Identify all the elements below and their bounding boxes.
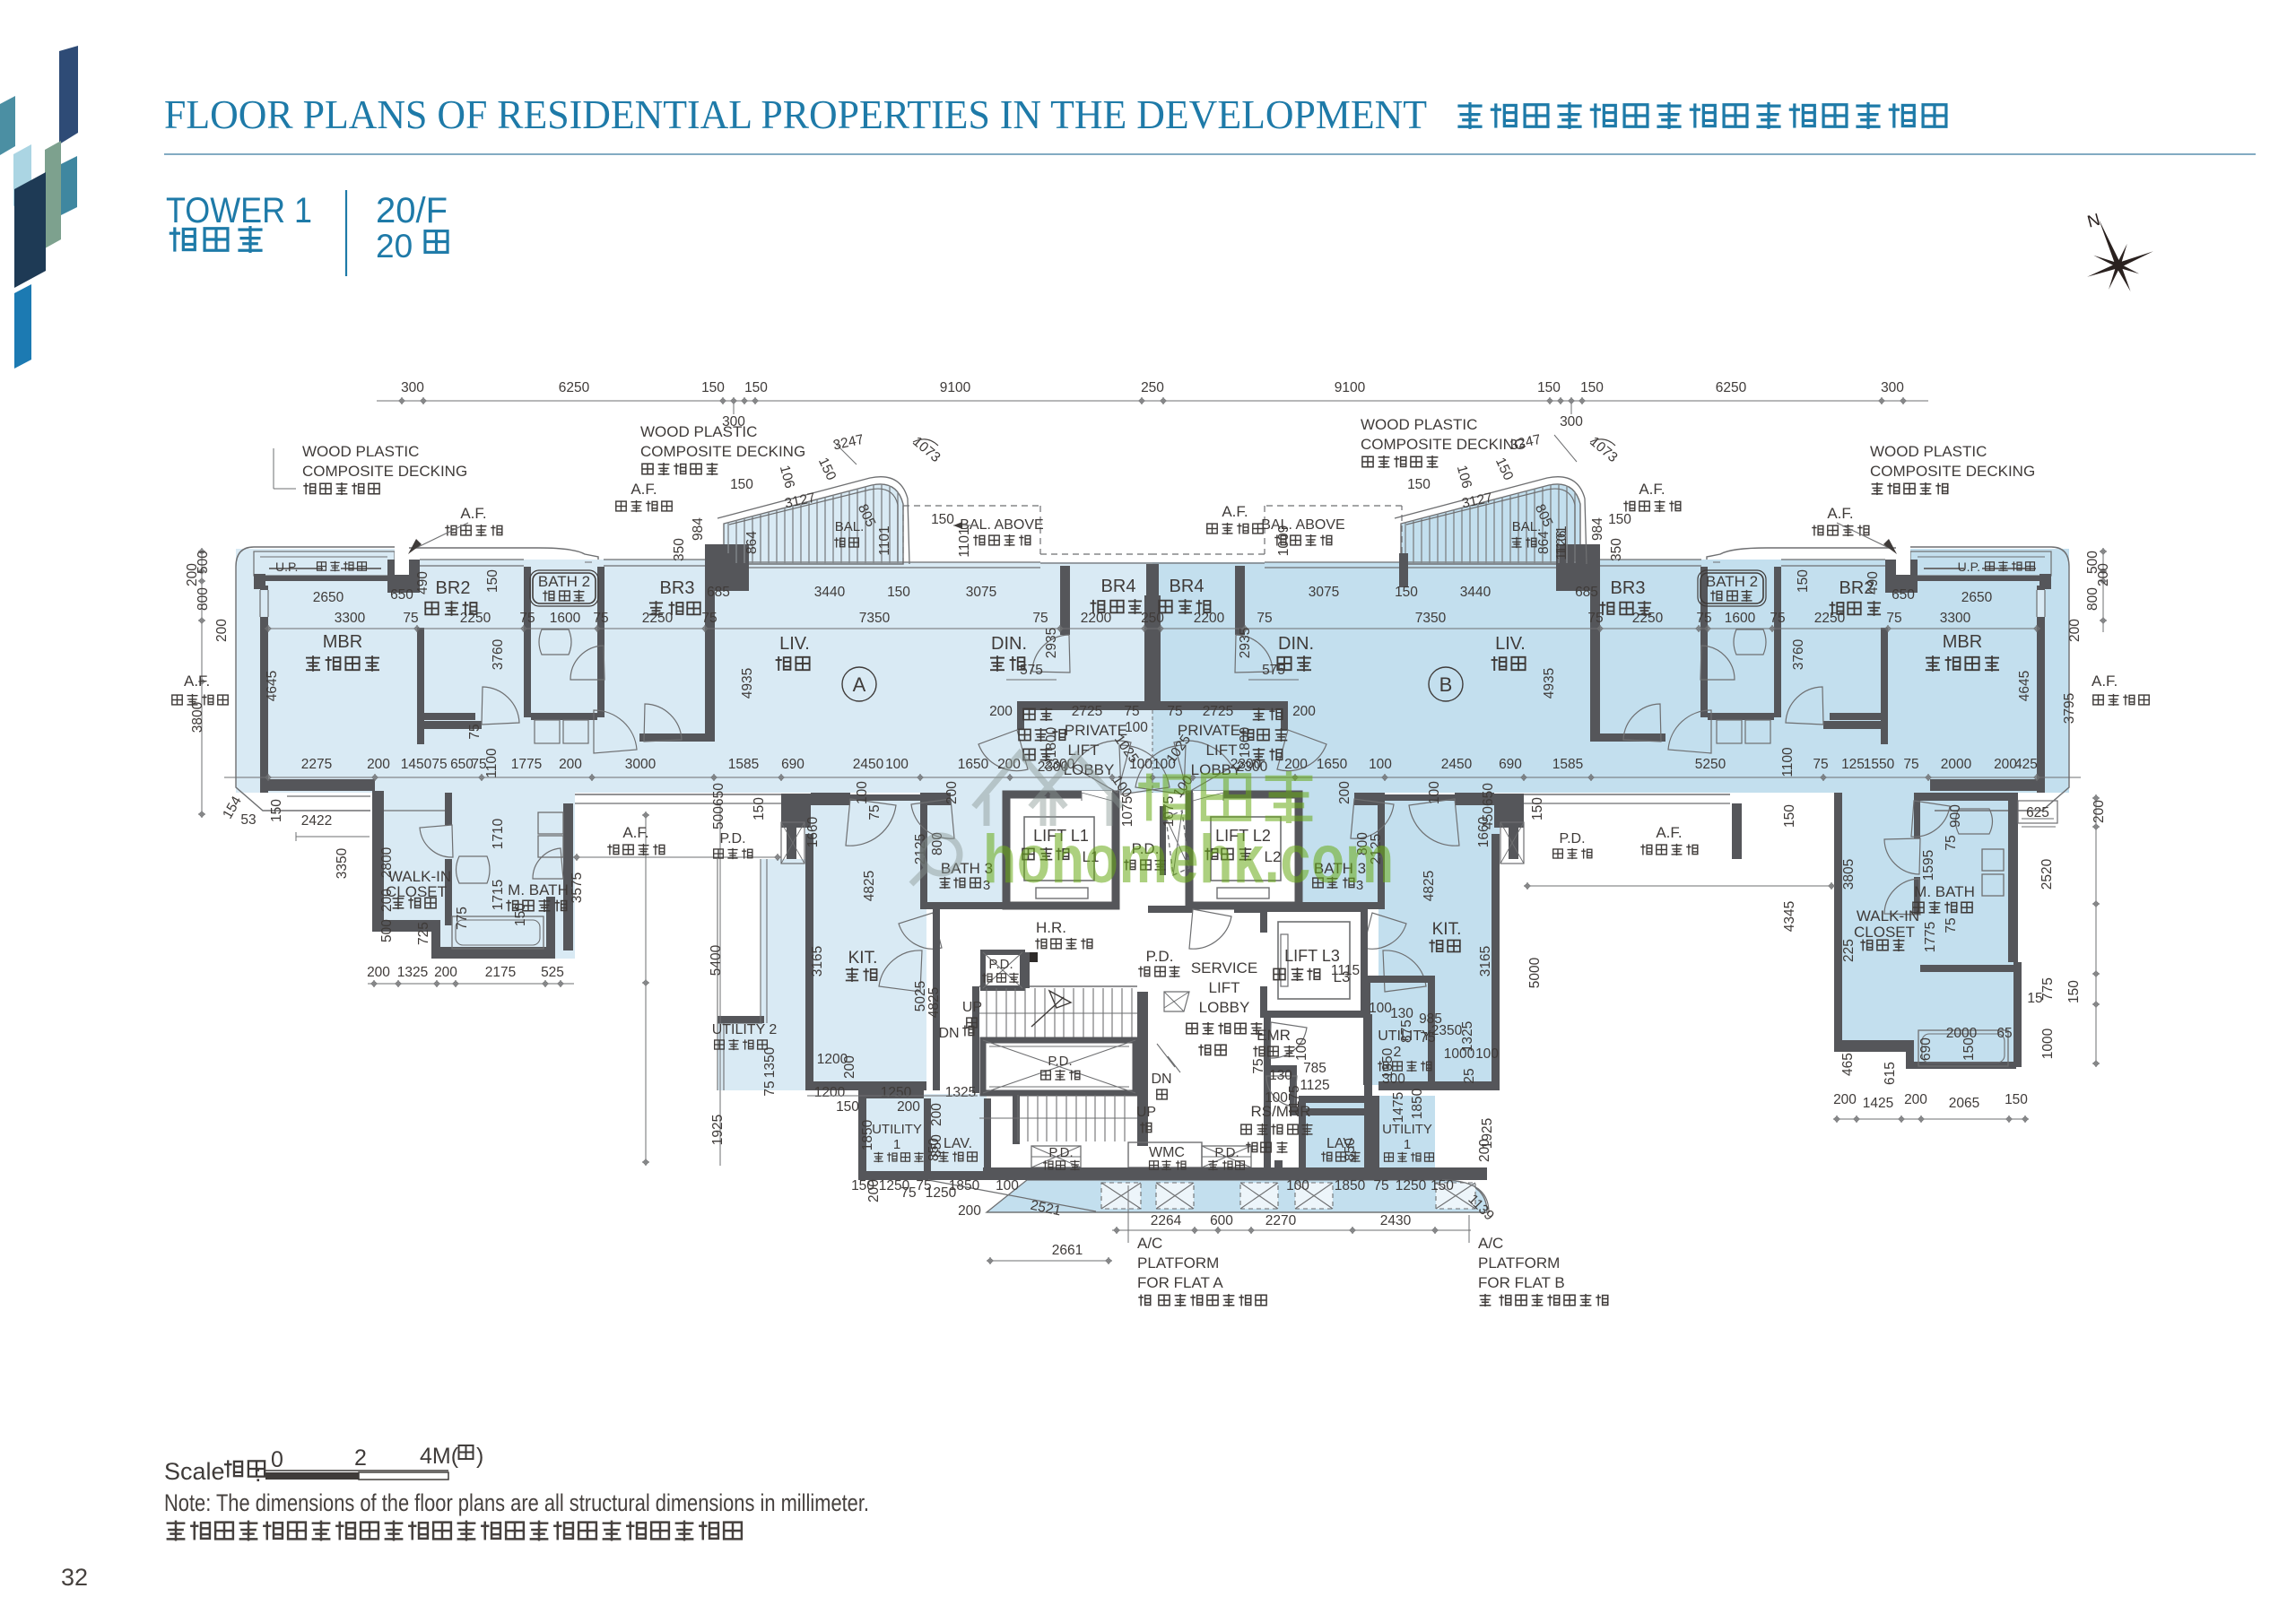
- svg-text:3165: 3165: [810, 946, 825, 976]
- svg-text:1000: 1000: [2040, 1028, 2056, 1059]
- svg-text:300: 300: [1560, 414, 1583, 430]
- svg-text::: :: [255, 1460, 262, 1487]
- svg-text:300: 300: [1881, 380, 1904, 395]
- svg-text:600: 600: [1210, 1213, 1233, 1228]
- svg-text:200: 200: [559, 757, 582, 772]
- svg-text:1126: 1126: [1554, 530, 1570, 560]
- svg-text:75: 75: [701, 611, 717, 626]
- svg-text:FLOOR PLANS OF RESIDENTIAL PRO: FLOOR PLANS OF RESIDENTIAL PROPERTIES IN…: [164, 91, 1427, 137]
- svg-text:P.D.: P.D.: [988, 957, 1013, 972]
- svg-text:U.P.: U.P.: [275, 560, 298, 574]
- svg-text:2450: 2450: [1441, 757, 1473, 772]
- svg-text:75: 75: [1251, 1058, 1266, 1073]
- svg-text:425: 425: [2014, 757, 2038, 772]
- svg-text:4825: 4825: [926, 987, 942, 1018]
- svg-text:130: 130: [1390, 1006, 1413, 1021]
- svg-text:1600: 1600: [550, 611, 581, 626]
- svg-text:7350: 7350: [1415, 611, 1447, 626]
- svg-text:M. BATH: M. BATH: [1914, 883, 1975, 900]
- svg-text:1250: 1250: [1396, 1178, 1427, 1193]
- svg-text:150: 150: [752, 797, 767, 820]
- svg-text:3440: 3440: [814, 585, 846, 600]
- svg-text:100: 100: [1427, 781, 1442, 804]
- svg-text:BR3: BR3: [1611, 578, 1646, 598]
- svg-text:200: 200: [367, 757, 390, 772]
- svg-text:PLATFORM: PLATFORM: [1137, 1254, 1219, 1271]
- svg-text:75: 75: [1944, 917, 1959, 933]
- svg-text:1850: 1850: [1335, 1178, 1366, 1193]
- svg-text:490: 490: [415, 571, 430, 595]
- svg-text:UTILITY: UTILITY: [1382, 1122, 1432, 1137]
- svg-text:BR4: BR4: [1170, 577, 1205, 596]
- svg-text:A.F.: A.F.: [1827, 505, 1853, 522]
- svg-text:75: 75: [467, 724, 483, 739]
- svg-text:1325: 1325: [397, 965, 428, 980]
- svg-text:75: 75: [1813, 757, 1828, 772]
- svg-text:1650: 1650: [958, 757, 989, 772]
- svg-text:MBR: MBR: [323, 632, 362, 652]
- svg-text:1101: 1101: [877, 525, 892, 555]
- svg-text:A.F.: A.F.: [631, 481, 657, 498]
- svg-text:250: 250: [1141, 380, 1164, 395]
- svg-text:150: 150: [2005, 1092, 2028, 1107]
- svg-text:1600: 1600: [1725, 611, 1756, 626]
- svg-text:200: 200: [842, 1055, 857, 1079]
- svg-text:150: 150: [1580, 380, 1604, 395]
- svg-text:2935: 2935: [1044, 628, 1059, 658]
- svg-text:225: 225: [1841, 939, 1857, 962]
- svg-text:200: 200: [2096, 563, 2111, 586]
- svg-text:Note: The dimensions of the fl: Note: The dimensions of the floor plans …: [164, 1489, 869, 1516]
- svg-text:75: 75: [762, 1081, 778, 1096]
- svg-text:PRIVATE: PRIVATE: [1178, 722, 1240, 739]
- svg-text:100: 100: [1475, 1046, 1499, 1062]
- svg-text:650: 650: [1481, 783, 1496, 806]
- svg-text:685: 685: [1575, 585, 1598, 600]
- svg-text:LIV.: LIV.: [1495, 634, 1526, 654]
- svg-text:32: 32: [61, 1564, 88, 1591]
- svg-text:75: 75: [593, 611, 608, 626]
- svg-text:1125: 1125: [1300, 1078, 1329, 1093]
- svg-text:150: 150: [1395, 585, 1418, 600]
- svg-text:2725: 2725: [1203, 704, 1233, 719]
- svg-text:WMC: WMC: [1149, 1145, 1185, 1160]
- svg-text:150: 150: [931, 512, 954, 527]
- svg-text:1585: 1585: [728, 757, 759, 772]
- svg-text:690: 690: [1499, 757, 1522, 772]
- svg-text:1: 1: [1404, 1137, 1411, 1152]
- svg-text:200: 200: [958, 1203, 981, 1219]
- svg-text:DN: DN: [938, 1026, 959, 1041]
- svg-text:2264: 2264: [1151, 1213, 1182, 1228]
- svg-text:DN: DN: [1151, 1072, 1171, 1087]
- svg-text:L3: L3: [1334, 968, 1351, 985]
- svg-text:BR2: BR2: [436, 578, 471, 598]
- svg-text:2270: 2270: [1265, 1213, 1297, 1228]
- svg-text:A.F.: A.F.: [460, 505, 486, 522]
- svg-text:WALK-IN: WALK-IN: [1857, 907, 1919, 924]
- svg-text:A/C: A/C: [1137, 1235, 1162, 1252]
- svg-text:200: 200: [1833, 1092, 1857, 1107]
- svg-text:200: 200: [929, 1103, 944, 1126]
- svg-text:LOBBY: LOBBY: [1199, 999, 1250, 1016]
- svg-text:1350: 1350: [762, 1046, 778, 1078]
- svg-text:625: 625: [2026, 805, 2049, 820]
- svg-text:EMR: EMR: [1257, 1027, 1291, 1044]
- svg-text:75: 75: [431, 757, 447, 772]
- svg-text:3440: 3440: [1460, 585, 1492, 600]
- svg-text:1100: 1100: [484, 748, 500, 778]
- svg-text:200: 200: [1292, 704, 1316, 719]
- svg-text:5250: 5250: [1695, 757, 1726, 772]
- svg-text:350: 350: [1609, 538, 1624, 561]
- svg-text:15: 15: [2027, 991, 2042, 1006]
- svg-text:125: 125: [1841, 757, 1865, 772]
- svg-text:100: 100: [885, 757, 909, 772]
- svg-text:1250: 1250: [926, 1185, 957, 1201]
- svg-text:350: 350: [672, 538, 687, 561]
- svg-text:150: 150: [836, 1099, 859, 1115]
- svg-text:200: 200: [1477, 1139, 1492, 1162]
- svg-text:4645: 4645: [265, 671, 280, 701]
- svg-text:A.F.: A.F.: [2092, 673, 2118, 690]
- svg-text:150: 150: [730, 477, 753, 492]
- svg-text:FOR FLAT A: FOR FLAT A: [1137, 1274, 1223, 1291]
- svg-text:1: 1: [893, 1137, 900, 1152]
- svg-text:150: 150: [851, 1178, 874, 1193]
- svg-text:TOWER 1: TOWER 1: [166, 191, 312, 230]
- svg-text:200: 200: [897, 1099, 920, 1115]
- svg-text:650: 650: [390, 587, 413, 603]
- svg-text:75: 75: [1770, 611, 1785, 626]
- svg-text:100: 100: [1286, 1178, 1309, 1193]
- svg-text:75: 75: [1373, 1178, 1388, 1193]
- svg-text:150: 150: [485, 569, 500, 593]
- svg-text:A: A: [853, 673, 866, 696]
- svg-text:4825: 4825: [1422, 871, 1437, 901]
- svg-text:DIN.: DIN.: [1278, 634, 1314, 654]
- svg-text:150: 150: [269, 799, 284, 822]
- svg-text:75: 75: [900, 1185, 916, 1201]
- svg-text:LIFT: LIFT: [1209, 979, 1240, 996]
- svg-text:500: 500: [711, 806, 726, 829]
- svg-text:465: 465: [1840, 1053, 1856, 1076]
- svg-text:MBR: MBR: [1943, 632, 1982, 652]
- svg-text:1660: 1660: [805, 816, 821, 847]
- svg-text:FOR FLAT B: FOR FLAT B: [1478, 1274, 1565, 1291]
- svg-text:WOOD PLASTIC: WOOD PLASTIC: [640, 423, 757, 440]
- svg-text:150: 150: [1431, 1178, 1454, 1193]
- svg-text:9100: 9100: [1335, 380, 1366, 395]
- svg-text:P.D.: P.D.: [1048, 1054, 1072, 1069]
- svg-text:100: 100: [1369, 757, 1392, 772]
- svg-text:1200: 1200: [814, 1085, 846, 1100]
- svg-text:WOOD PLASTIC: WOOD PLASTIC: [302, 443, 419, 460]
- svg-text:130: 130: [1269, 1068, 1292, 1083]
- svg-text:2935: 2935: [1238, 628, 1253, 658]
- svg-text:B: B: [1439, 673, 1453, 696]
- svg-text:KIT.: KIT.: [1432, 920, 1462, 939]
- svg-text:2: 2: [354, 1445, 367, 1471]
- svg-text:7350: 7350: [859, 611, 891, 626]
- svg-text:P.D.: P.D.: [719, 831, 745, 846]
- svg-text:3350: 3350: [335, 847, 350, 879]
- svg-text:725: 725: [416, 922, 431, 945]
- svg-text:75: 75: [1696, 611, 1711, 626]
- svg-text:615: 615: [1883, 1062, 1898, 1085]
- svg-text:U.P.: U.P.: [1958, 560, 1980, 574]
- svg-text:785: 785: [1303, 1061, 1326, 1076]
- svg-text:2: 2: [1394, 1045, 1402, 1060]
- svg-text:5400: 5400: [709, 944, 724, 976]
- svg-text:985: 985: [1419, 1011, 1442, 1027]
- svg-text:650: 650: [1892, 587, 1915, 603]
- svg-text:LIFT L3: LIFT L3: [1284, 947, 1340, 965]
- svg-text:300: 300: [1382, 1072, 1405, 1087]
- svg-text:75: 75: [1124, 704, 1139, 719]
- svg-text:2450: 2450: [853, 757, 884, 772]
- svg-text:5000: 5000: [1527, 957, 1543, 988]
- svg-text:LIFT: LIFT: [1206, 742, 1238, 759]
- svg-text:hohomehk.com: hohomehk.com: [983, 821, 1395, 898]
- svg-text:CLOSET: CLOSET: [1854, 924, 1915, 941]
- svg-text:BR2: BR2: [1839, 578, 1874, 598]
- svg-text:2725: 2725: [1072, 704, 1102, 719]
- svg-text:P.D.: P.D.: [1559, 831, 1585, 846]
- svg-text:1450: 1450: [401, 757, 432, 772]
- svg-text:800: 800: [2085, 587, 2100, 611]
- svg-text:2650: 2650: [313, 590, 344, 605]
- svg-text:75: 75: [1257, 611, 1272, 626]
- svg-text:BATH 2: BATH 2: [1706, 573, 1758, 590]
- svg-text:1100: 1100: [1780, 747, 1796, 777]
- svg-text:SERVICE: SERVICE: [1191, 959, 1257, 976]
- svg-text:200: 200: [1337, 781, 1352, 804]
- svg-text:75: 75: [1903, 757, 1918, 772]
- svg-text:1250: 1250: [881, 1085, 912, 1100]
- svg-text:650: 650: [450, 757, 474, 772]
- svg-text:UTILITY 2: UTILITY 2: [712, 1022, 778, 1037]
- svg-text:200: 200: [2092, 800, 2107, 823]
- svg-text:3075: 3075: [1309, 585, 1339, 600]
- svg-text:150: 150: [1796, 569, 1811, 593]
- svg-text:150: 150: [701, 380, 725, 395]
- svg-text:A.F.: A.F.: [184, 673, 210, 690]
- svg-text:BAL. ABOVE: BAL. ABOVE: [1261, 517, 1344, 533]
- svg-text:BAL.: BAL.: [835, 519, 865, 534]
- svg-text:UP: UP: [962, 1000, 982, 1015]
- svg-text:200: 200: [2067, 619, 2083, 642]
- svg-text:100: 100: [996, 1178, 1019, 1193]
- svg-text:3795: 3795: [2062, 693, 2077, 724]
- svg-text:850: 850: [929, 1134, 944, 1158]
- svg-text:2250: 2250: [460, 611, 491, 626]
- svg-text:690: 690: [781, 757, 804, 772]
- svg-text:3805: 3805: [1841, 859, 1857, 890]
- svg-text:20/F: 20/F: [376, 191, 448, 230]
- svg-text:H.R.: H.R.: [1036, 919, 1066, 936]
- svg-text:900: 900: [1948, 804, 1963, 828]
- svg-text:65: 65: [1996, 1026, 2012, 1041]
- svg-text:200: 200: [434, 965, 457, 980]
- svg-text:200: 200: [944, 781, 960, 804]
- svg-text:BR4: BR4: [1101, 577, 1136, 596]
- svg-text:A.F.: A.F.: [1656, 824, 1682, 841]
- svg-text:650: 650: [711, 783, 726, 806]
- svg-text:): ): [476, 1444, 483, 1469]
- svg-text:Scale: Scale: [164, 1458, 225, 1485]
- svg-text:75: 75: [867, 804, 883, 820]
- svg-text:100: 100: [1125, 720, 1148, 735]
- svg-text:2000: 2000: [1946, 1026, 1978, 1041]
- svg-text:BR3: BR3: [660, 578, 695, 598]
- svg-text:150: 150: [1608, 512, 1631, 527]
- svg-text:1425: 1425: [1863, 1096, 1893, 1111]
- svg-text:2650: 2650: [1961, 590, 1993, 605]
- svg-text:COMPOSITE DECKING: COMPOSITE DECKING: [1361, 436, 1526, 453]
- svg-text:1660: 1660: [1476, 816, 1492, 847]
- svg-text:3165: 3165: [1478, 946, 1493, 976]
- svg-text:P.D.: P.D.: [1146, 948, 1174, 965]
- svg-text:KIT.: KIT.: [848, 949, 878, 968]
- svg-text:PLATFORM: PLATFORM: [1478, 1254, 1560, 1271]
- svg-text:1710: 1710: [491, 818, 506, 849]
- svg-text:A/C: A/C: [1478, 1235, 1503, 1252]
- svg-text:75: 75: [1167, 704, 1182, 719]
- svg-text:1715: 1715: [491, 880, 506, 910]
- svg-text:150: 150: [1782, 804, 1797, 828]
- svg-text:1000: 1000: [1444, 1046, 1475, 1062]
- svg-text:UTILITY: UTILITY: [1378, 1028, 1431, 1044]
- svg-text:RS/MRR: RS/MRR: [1250, 1103, 1310, 1120]
- svg-text:2250: 2250: [1814, 611, 1846, 626]
- svg-text:864: 864: [744, 531, 760, 554]
- svg-text:1650: 1650: [1317, 757, 1348, 772]
- svg-text:3000: 3000: [625, 757, 657, 772]
- svg-text:200: 200: [367, 965, 390, 980]
- svg-text:2065: 2065: [1949, 1096, 1979, 1111]
- svg-text:6250: 6250: [559, 380, 590, 395]
- svg-text:3300: 3300: [335, 611, 366, 626]
- svg-text:150: 150: [1530, 797, 1545, 820]
- svg-text:150: 150: [2066, 980, 2082, 1003]
- svg-text:3800: 3800: [190, 701, 205, 733]
- svg-text:A.F.: A.F.: [1639, 481, 1665, 498]
- svg-text:PRIVATE: PRIVATE: [1065, 722, 1127, 739]
- svg-text:BATH 2: BATH 2: [538, 573, 590, 590]
- svg-text:525: 525: [541, 965, 564, 980]
- svg-text:150: 150: [887, 585, 910, 600]
- svg-text:1550: 1550: [1864, 757, 1895, 772]
- svg-text:9100: 9100: [940, 380, 971, 395]
- svg-text:2250: 2250: [642, 611, 674, 626]
- svg-text:4935: 4935: [1542, 668, 1557, 699]
- svg-text:3760: 3760: [1791, 638, 1806, 670]
- svg-text:0: 0: [271, 1447, 283, 1472]
- svg-text:UP: UP: [1136, 1105, 1156, 1120]
- svg-text:3760: 3760: [491, 638, 506, 670]
- svg-text:6250: 6250: [1716, 380, 1747, 395]
- svg-text:75: 75: [1944, 835, 1959, 850]
- svg-text:WOOD PLASTIC: WOOD PLASTIC: [1361, 416, 1477, 433]
- svg-text:100: 100: [1294, 1037, 1309, 1061]
- svg-text:984: 984: [691, 517, 706, 541]
- svg-text:200: 200: [1904, 1092, 1927, 1107]
- svg-text:4645: 4645: [2017, 671, 2032, 701]
- svg-text:75: 75: [1032, 611, 1048, 626]
- svg-text:4935: 4935: [740, 668, 755, 699]
- svg-text:2520: 2520: [2039, 858, 2055, 890]
- svg-text:2000: 2000: [1941, 757, 1972, 772]
- svg-text:1475: 1475: [1391, 1092, 1406, 1123]
- svg-text:200: 200: [1284, 757, 1308, 772]
- svg-text:984: 984: [1590, 517, 1605, 541]
- svg-text:150: 150: [1537, 380, 1561, 395]
- svg-text:3575: 3575: [570, 872, 585, 903]
- svg-text:75: 75: [519, 611, 535, 626]
- svg-text:COMPOSITE DECKING: COMPOSITE DECKING: [302, 463, 467, 480]
- svg-text:A.F.: A.F.: [1222, 503, 1248, 520]
- svg-text:COMPOSITE DECKING: COMPOSITE DECKING: [640, 443, 805, 460]
- svg-text:2200: 2200: [1081, 611, 1112, 626]
- svg-text:1850: 1850: [1410, 1088, 1425, 1119]
- svg-text:20: 20: [376, 228, 413, 265]
- svg-text:4345: 4345: [1782, 901, 1797, 932]
- svg-text:800: 800: [196, 587, 211, 611]
- svg-text:DIN.: DIN.: [991, 634, 1027, 654]
- svg-text:200: 200: [989, 704, 1013, 719]
- svg-text:150: 150: [744, 380, 768, 395]
- svg-text:BAL.: BAL.: [1512, 519, 1542, 534]
- svg-text:25: 25: [1462, 1068, 1477, 1083]
- svg-text:1325: 1325: [945, 1085, 976, 1100]
- svg-text:UTILITY: UTILITY: [872, 1122, 922, 1137]
- svg-text:A.F.: A.F.: [622, 824, 648, 841]
- svg-text:LIV.: LIV.: [779, 634, 810, 654]
- svg-text:2430: 2430: [1380, 1213, 1412, 1228]
- svg-text:4825: 4825: [862, 871, 877, 901]
- svg-text:690: 690: [1918, 1037, 1934, 1061]
- svg-text:685: 685: [707, 585, 730, 600]
- svg-text:775: 775: [455, 907, 470, 930]
- svg-text:75: 75: [1886, 611, 1901, 626]
- svg-text:2661: 2661: [1052, 1243, 1083, 1258]
- svg-text:LAV.: LAV.: [944, 1136, 972, 1151]
- svg-text:150: 150: [1407, 477, 1431, 492]
- svg-text:WOOD PLASTIC: WOOD PLASTIC: [1870, 443, 1987, 460]
- svg-text:4M(: 4M(: [420, 1444, 459, 1469]
- svg-text:53: 53: [240, 812, 256, 828]
- svg-text:LAV.: LAV.: [1326, 1136, 1355, 1151]
- svg-text:100: 100: [855, 781, 870, 804]
- svg-text:100: 100: [1369, 1001, 1392, 1016]
- svg-text:1595: 1595: [1921, 850, 1936, 881]
- svg-text:3300: 3300: [1940, 611, 1971, 626]
- svg-text:P.D.: P.D.: [1048, 1145, 1073, 1160]
- svg-text:75: 75: [403, 611, 418, 626]
- svg-text:P.D.: P.D.: [1214, 1145, 1239, 1160]
- svg-text:75: 75: [1587, 611, 1603, 626]
- svg-text:3075: 3075: [966, 585, 996, 600]
- svg-text:2422: 2422: [301, 813, 332, 829]
- svg-text:M. BATH: M. BATH: [508, 881, 569, 898]
- svg-text:COMPOSITE DECKING: COMPOSITE DECKING: [1870, 463, 2035, 480]
- svg-text:2250: 2250: [1632, 611, 1664, 626]
- svg-text:200: 200: [185, 563, 200, 586]
- svg-text:1775: 1775: [1923, 922, 1938, 952]
- svg-text:200: 200: [214, 619, 230, 642]
- svg-text:1585: 1585: [1552, 757, 1583, 772]
